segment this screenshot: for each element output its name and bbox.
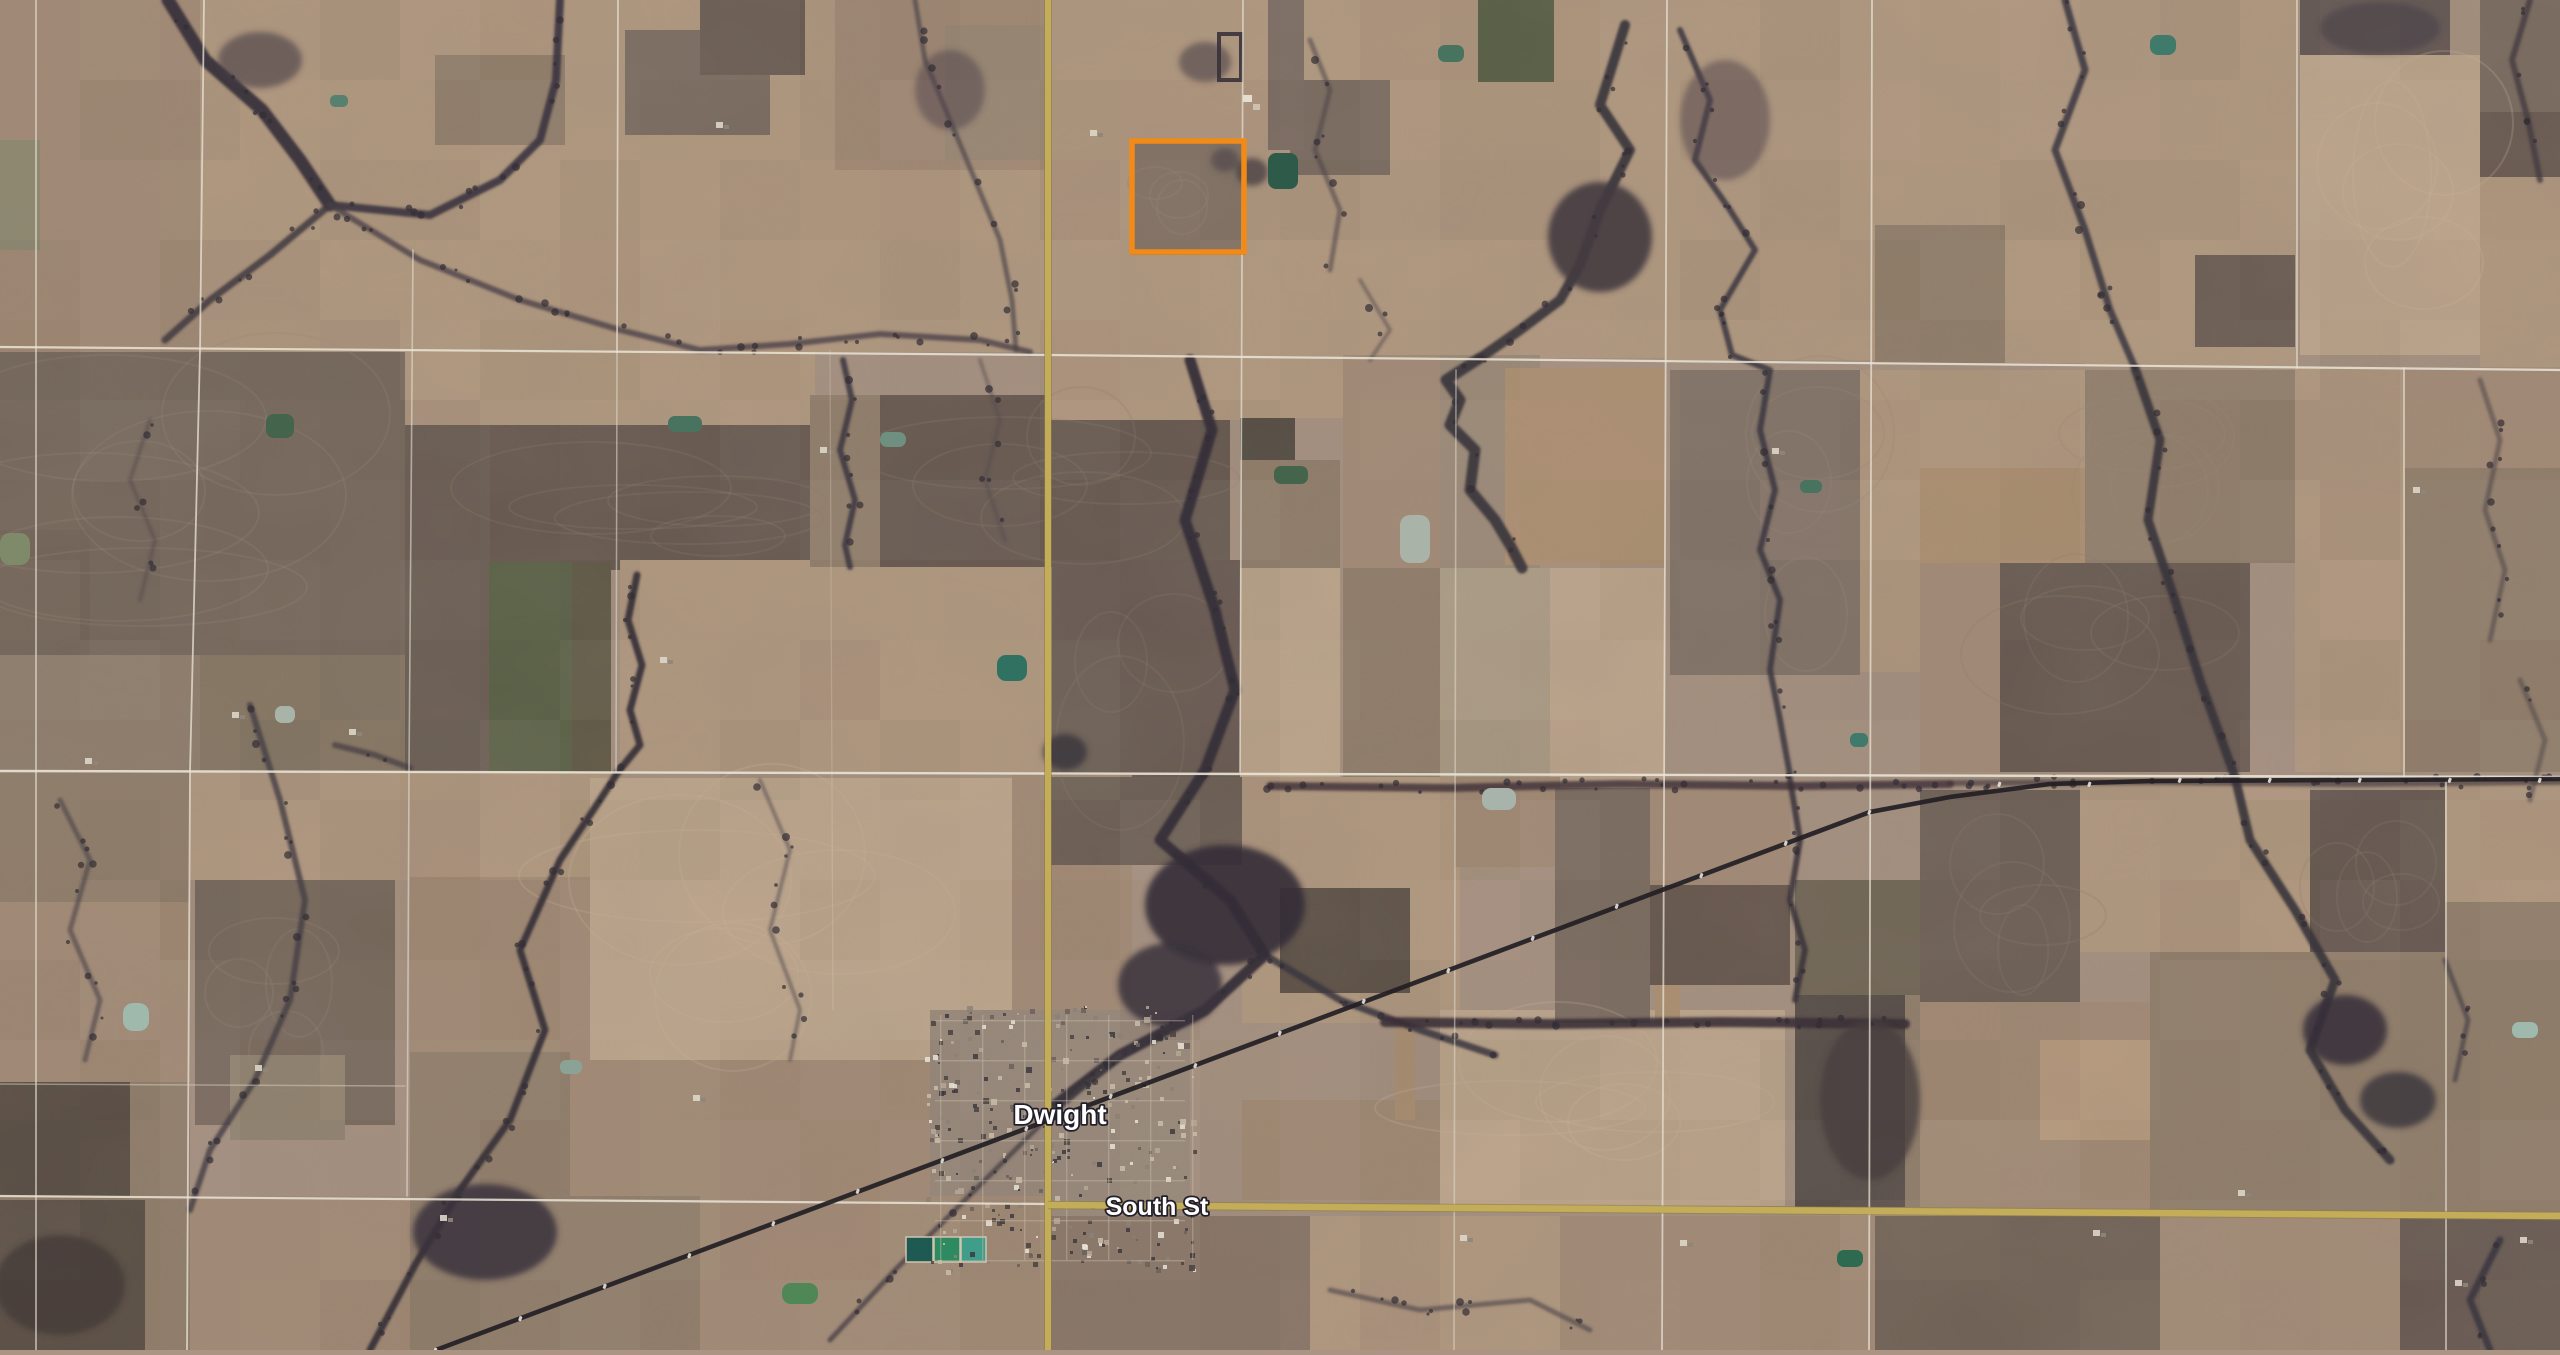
svg-text:South St: South St [1106,1193,1209,1221]
svg-text:Dwight: Dwight [1013,1099,1106,1130]
